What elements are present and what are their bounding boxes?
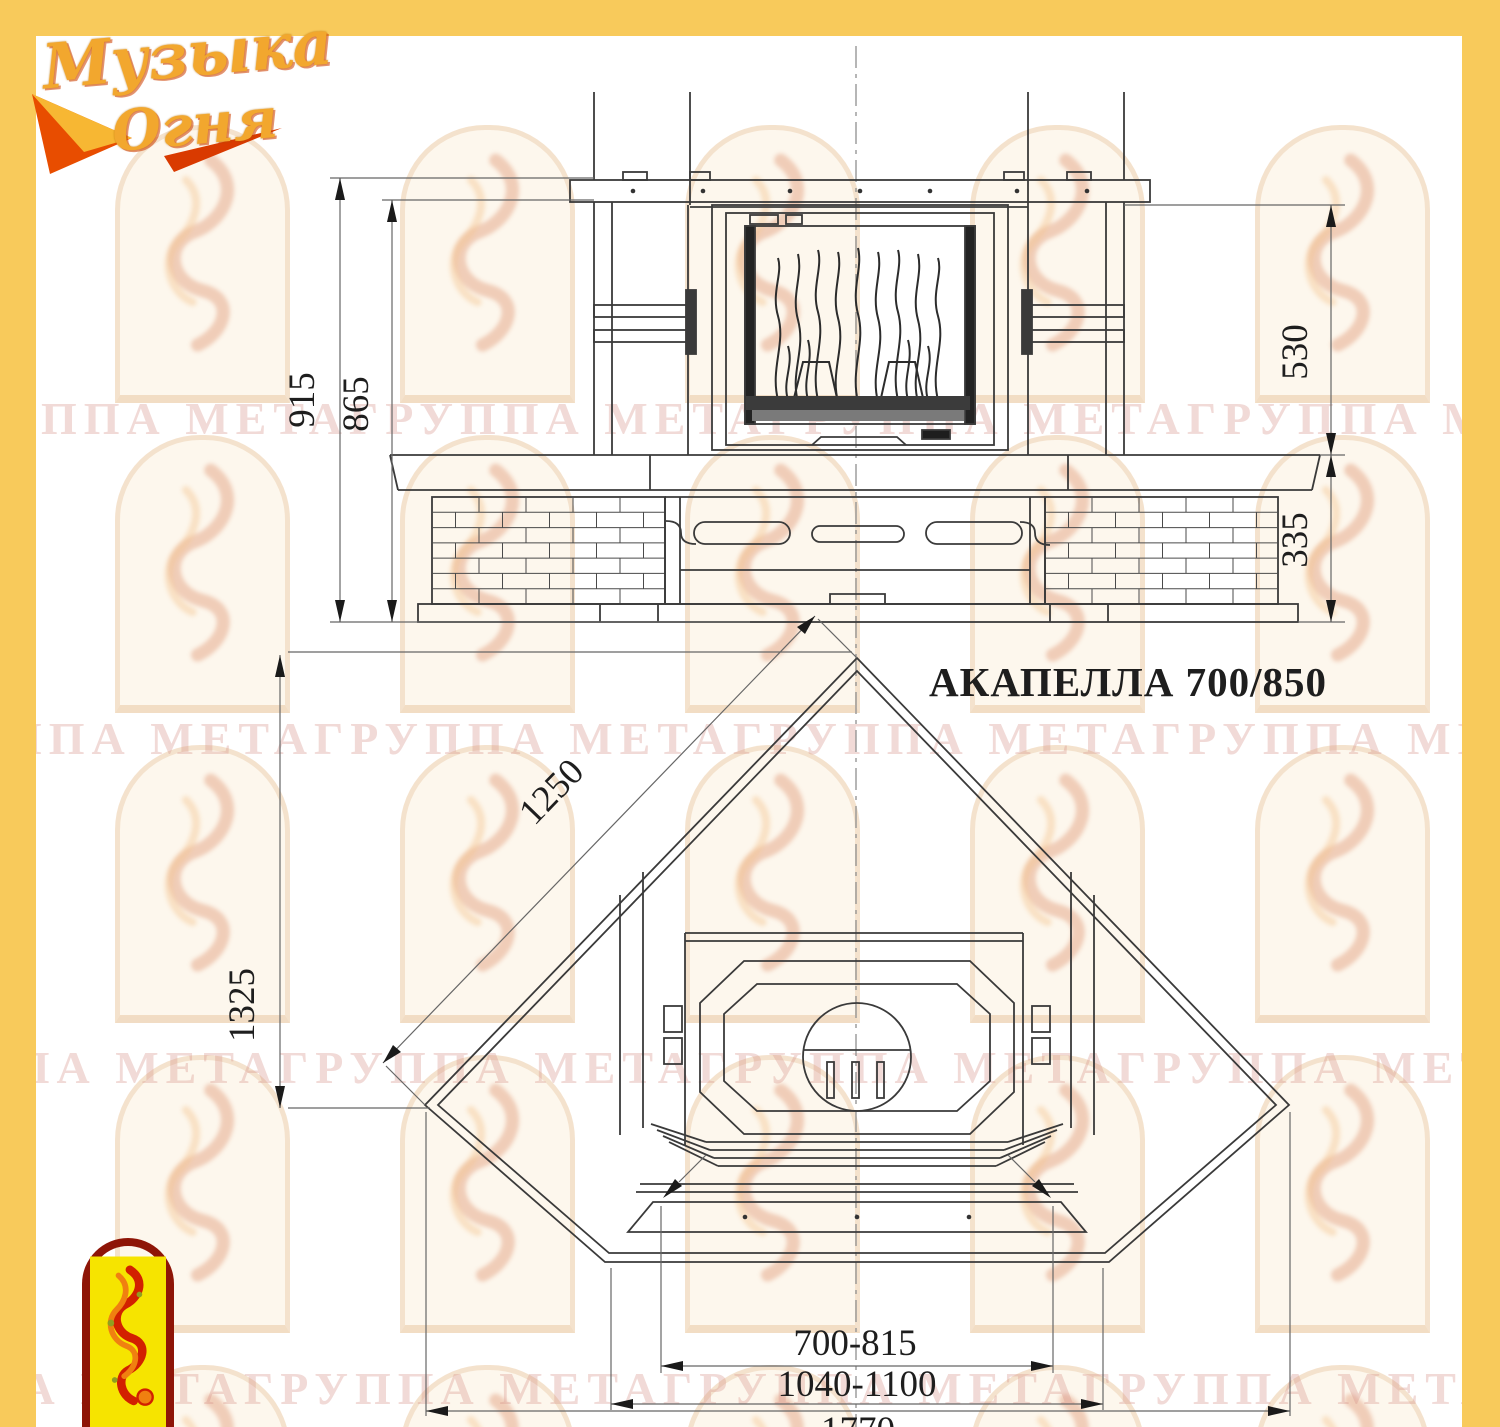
dim-height-total: 915 [282,372,323,428]
brick-pattern [432,497,1278,604]
fireplace-dimension-sheet: ГРУППА МЕТАГРУППА МЕТАГРУППА МЕТАГРУППА … [0,0,1500,1427]
plinth [418,604,1298,622]
emblem-flame-figure [90,1246,166,1427]
dim-height-body: 865 [336,376,377,432]
flue-outlet [803,1003,911,1111]
front-elevation [390,92,1320,622]
dim-diagonal: 1250 [511,751,592,833]
dim-front-width: 700-815 [793,1323,916,1364]
dim-firebox-height: 530 [1275,324,1316,380]
crown-screw-dots [631,189,1090,194]
dimension-lines [280,178,1345,1416]
flame-grate [776,248,941,402]
frame-band-right [1462,0,1500,1427]
dimension-arrowheads [275,178,1336,1416]
hearth-bench [390,455,1320,490]
plan-door-layers [651,1124,1063,1166]
meta-emblem [82,1238,174,1427]
dim-depth: 1325 [222,968,263,1042]
plan-view [425,658,1289,1262]
dim-base-height: 335 [1275,512,1316,568]
dim-mid-width: 1040-1100 [778,1364,937,1405]
frame-band-left [0,0,36,1427]
brand-logo: Музыка Огня [14,6,304,181]
base-center-panel [665,497,1050,604]
dim-total-width: 1770 [821,1410,895,1427]
technical-drawing: 915 865 530 335 1325 1250 700-815 1040-1… [0,0,1500,1427]
model-title: АКАПЕЛЛА 700/850 [929,659,1327,705]
